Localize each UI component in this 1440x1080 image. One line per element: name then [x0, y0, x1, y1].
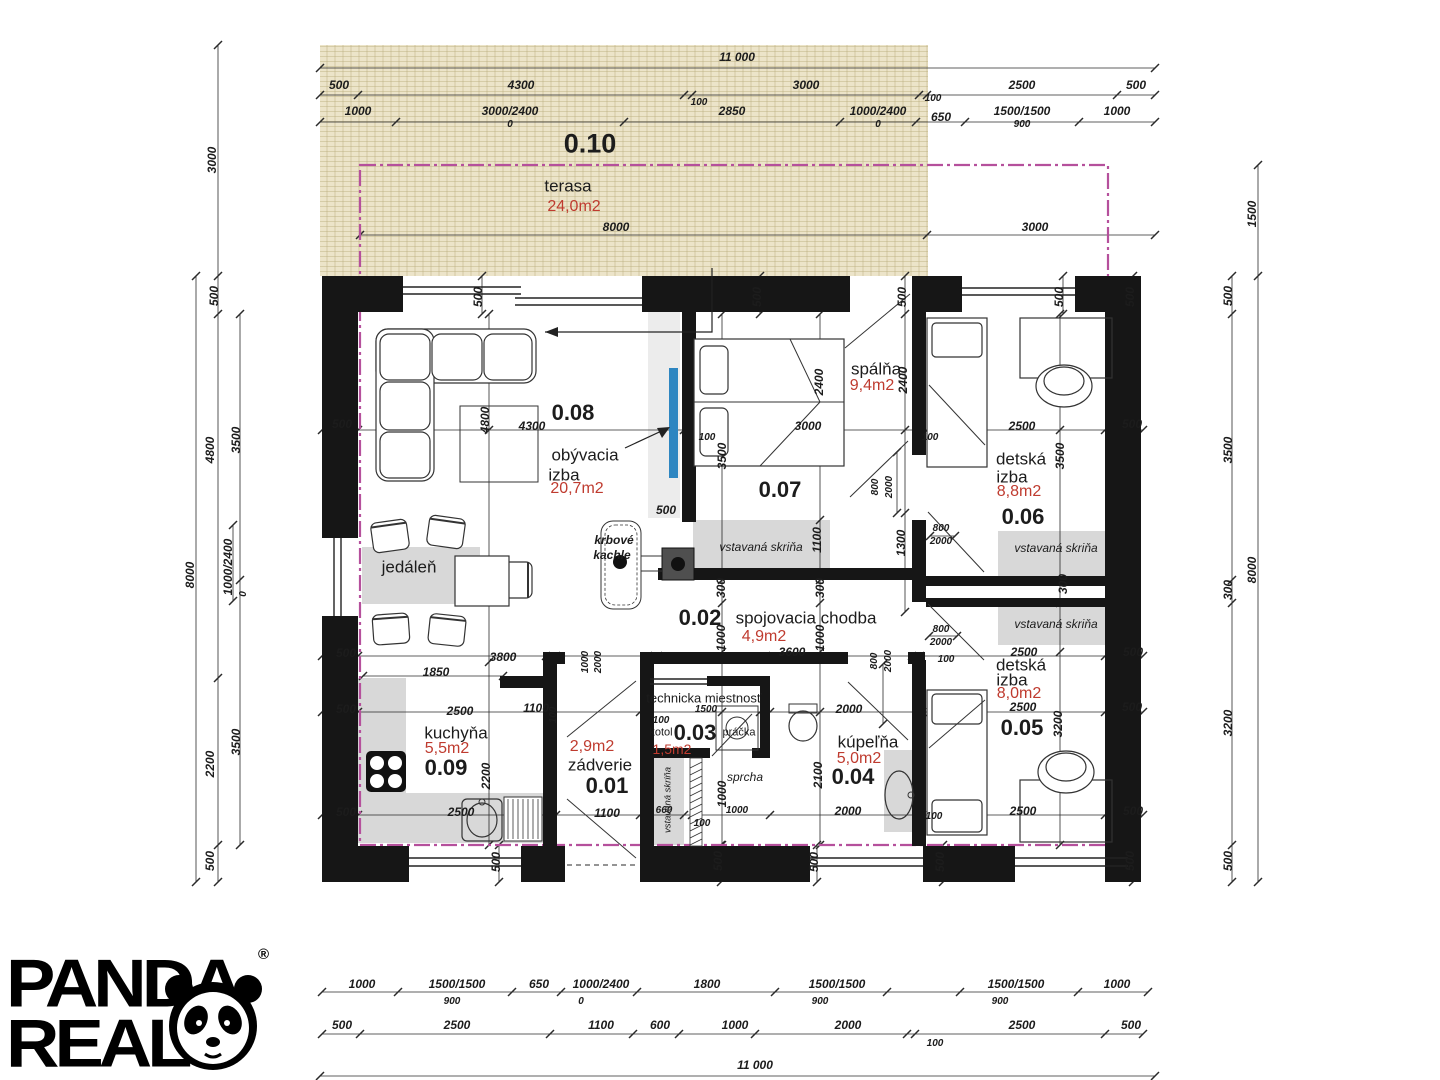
- panda-real-logo: PANDA ® REAL: [6, 944, 306, 1080]
- blue-door-marker: [669, 368, 678, 478]
- logo-registered-mark: ®: [258, 946, 269, 963]
- floorplan-canvas: 11 00050043003000250050010010010003000/2…: [0, 0, 1440, 1080]
- panda-icon: [151, 974, 281, 1080]
- floorplan-drawing: [0, 0, 1440, 1080]
- terrace-boundary: [360, 165, 1108, 845]
